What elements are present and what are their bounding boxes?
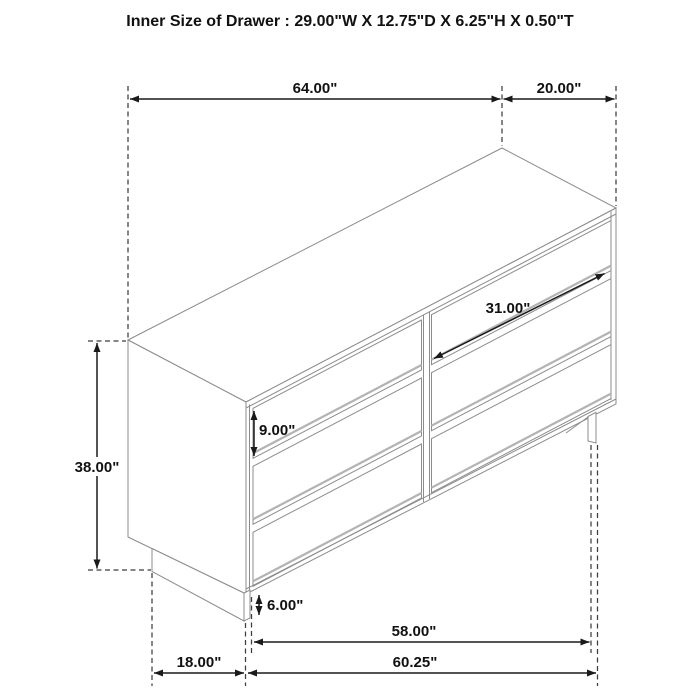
dim-label-height: 38.00" — [75, 459, 120, 476]
dresser-drawing — [128, 148, 616, 621]
dim-label-base-depth: 18.00" — [177, 654, 222, 671]
diagram-title: Inner Size of Drawer : 29.00"W X 12.75"D… — [126, 13, 574, 30]
dimension-diagram-page: Inner Size of Drawer : 29.00"W X 12.75"D… — [0, 0, 700, 700]
plinth-front-corner — [244, 590, 250, 621]
dim-label-base-width: 60.25" — [393, 654, 438, 671]
dim-label-top-width: 64.00" — [293, 80, 338, 97]
dim-label-drawer-height: 9.00" — [259, 422, 295, 439]
dim-label-drawer-width: 31.00" — [486, 300, 531, 317]
dim-label-top-depth: 20.00" — [537, 80, 582, 97]
leg-front-face — [588, 412, 596, 443]
dim-label-inner-width: 58.00" — [392, 623, 437, 640]
dresser-dimension-diagram: Inner Size of Drawer : 29.00"W X 12.75"D… — [0, 0, 700, 700]
dim-label-base-height: 6.00" — [267, 597, 303, 614]
